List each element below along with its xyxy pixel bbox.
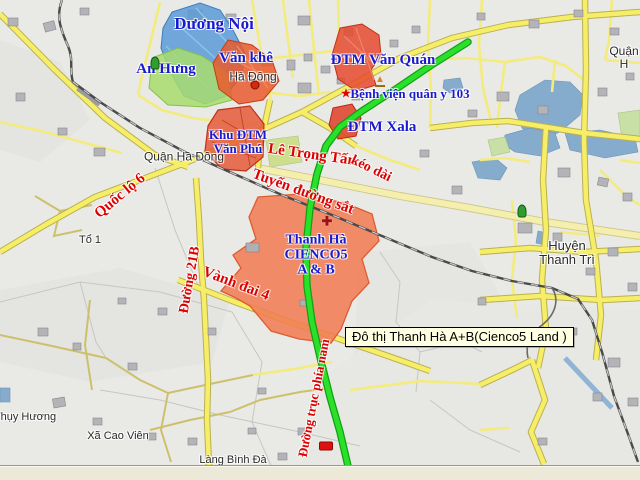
map-canvas[interactable]: [0, 0, 640, 466]
map-tooltip: Đô thị Thanh Hà A+B(Cienco5 Land ): [345, 327, 574, 347]
status-bar: [0, 465, 640, 480]
map-window: Dương NộiVăn khêAn HưngHà ĐôngĐTM Văn Qu…: [0, 0, 640, 480]
